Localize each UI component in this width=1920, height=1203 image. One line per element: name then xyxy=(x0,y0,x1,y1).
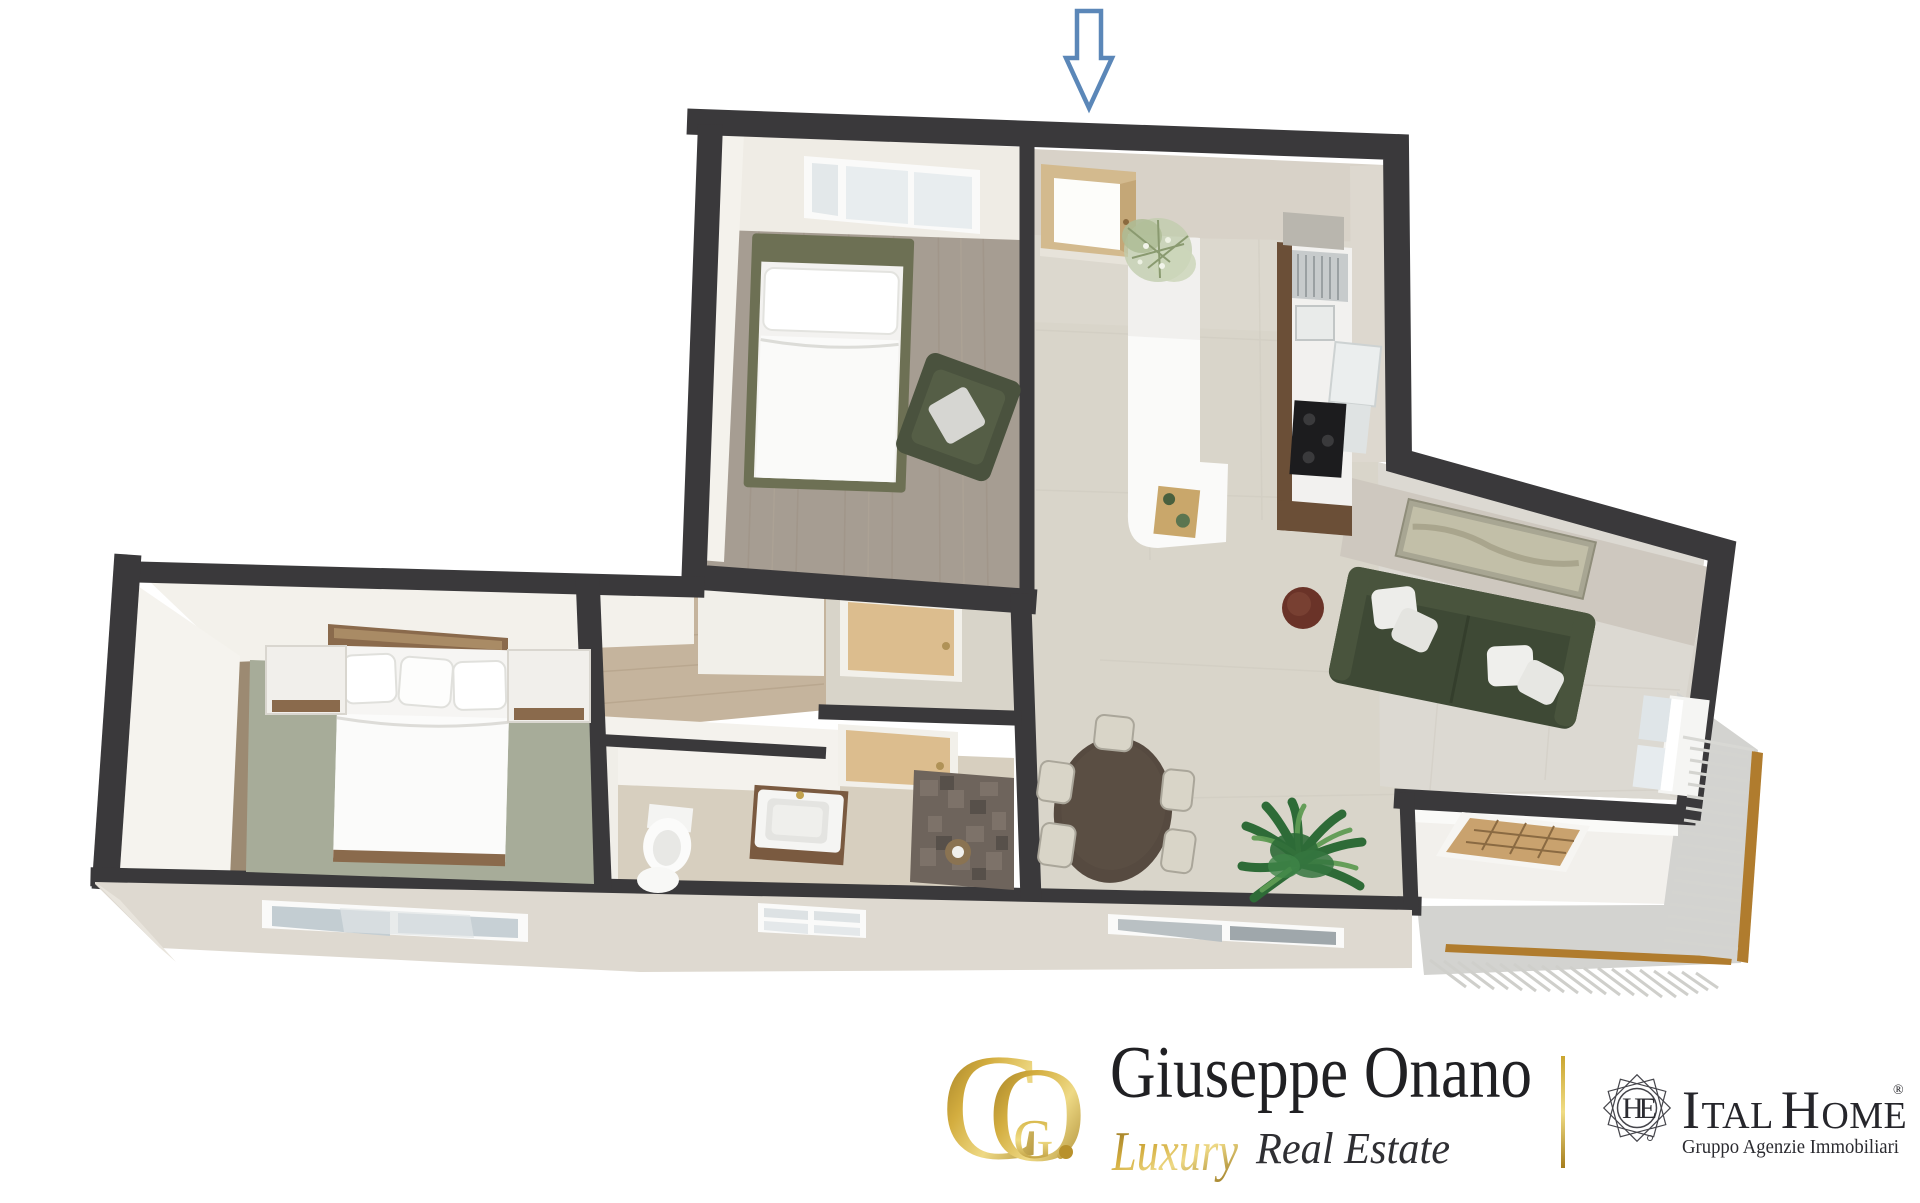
svg-text:Real Estate: Real Estate xyxy=(1255,1124,1450,1173)
svg-text:Giuseppe Onano: Giuseppe Onano xyxy=(1110,1032,1532,1114)
svg-text:HE: HE xyxy=(1622,1092,1656,1125)
svg-text:®: ® xyxy=(1893,1083,1904,1098)
svg-text:Gruppo Agenzie Immobiliari: Gruppo Agenzie Immobiliari xyxy=(1682,1136,1899,1158)
svg-text:Luxury: Luxury xyxy=(1111,1121,1238,1183)
svg-text:G.: G. xyxy=(1013,1109,1067,1171)
